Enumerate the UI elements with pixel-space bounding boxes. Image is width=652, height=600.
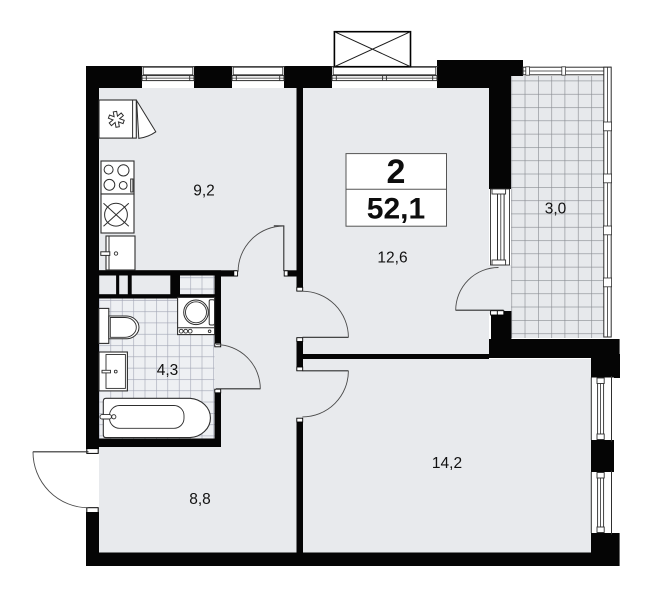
svg-text:2: 2 <box>387 153 406 191</box>
svg-text:52,1: 52,1 <box>367 193 425 226</box>
svg-text:14,2: 14,2 <box>432 455 462 472</box>
svg-text:8,8: 8,8 <box>189 491 211 508</box>
svg-text:9,2: 9,2 <box>193 183 215 200</box>
svg-text:4,3: 4,3 <box>157 362 179 379</box>
svg-text:3,0: 3,0 <box>545 201 567 218</box>
svg-text:12,6: 12,6 <box>377 250 407 267</box>
